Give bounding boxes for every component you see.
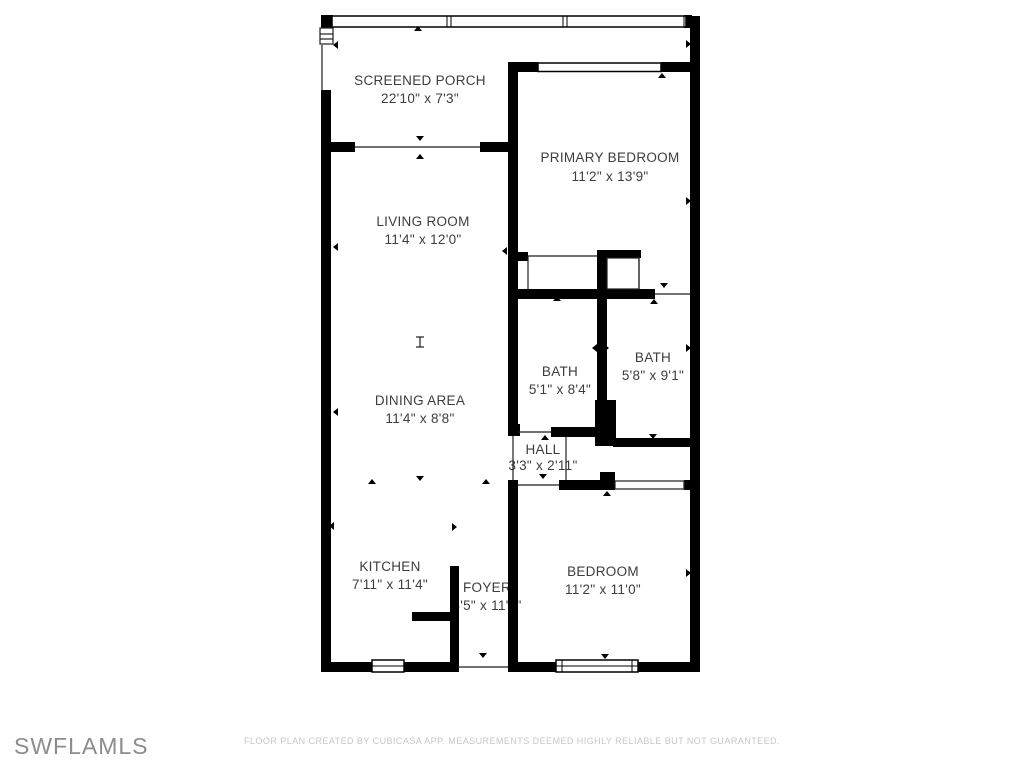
tick-arrow bbox=[416, 476, 424, 481]
room-label-bath-2: BATH bbox=[635, 350, 671, 365]
room-label-hall: HALL bbox=[526, 442, 561, 457]
floor-plan: SCREENED PORCH 22'10" x 7'3" PRIMARY BED… bbox=[0, 0, 1024, 768]
room-dims-dining-area: 11'4" x 8'8" bbox=[385, 411, 454, 426]
floor-plan-page: SCREENED PORCH 22'10" x 7'3" PRIMARY BED… bbox=[0, 0, 1024, 768]
disclaimer-text: FLOOR PLAN CREATED BY CUBICASA APP. MEAS… bbox=[0, 736, 1024, 746]
tick-arrow bbox=[539, 474, 547, 479]
room-label-living-room: LIVING ROOM bbox=[376, 214, 469, 229]
room-label-foyer: FOYER bbox=[463, 580, 511, 595]
room-dims-bath-2: 5'8" x 9'1" bbox=[622, 368, 684, 383]
wall bbox=[508, 62, 538, 72]
wall bbox=[518, 252, 528, 261]
room-dims-living-room: 11'4" x 12'0" bbox=[385, 232, 462, 247]
screen-door-symbol bbox=[320, 28, 333, 44]
tick-arrow bbox=[333, 408, 338, 416]
tick-arrow bbox=[541, 435, 549, 440]
room-dims-bath-1: 5'1" x 8'4" bbox=[529, 382, 591, 397]
room-label-bedroom: BEDROOM bbox=[567, 564, 639, 579]
wall bbox=[600, 472, 615, 482]
wall bbox=[508, 424, 520, 436]
wall bbox=[613, 438, 692, 447]
tick-arrow bbox=[479, 653, 487, 658]
room-dims-kitchen: 7'11" x 11'4" bbox=[352, 577, 428, 592]
wall bbox=[412, 612, 456, 621]
tick-arrow bbox=[416, 154, 424, 159]
tick-arrow bbox=[601, 654, 609, 659]
wall bbox=[321, 15, 333, 28]
wall bbox=[321, 142, 355, 152]
wall bbox=[321, 662, 373, 672]
wall bbox=[690, 16, 700, 672]
room-label-screened-porch: SCREENED PORCH bbox=[354, 73, 486, 88]
wall bbox=[321, 90, 331, 672]
room-dims-bedroom: 11'2" x 11'0" bbox=[565, 582, 641, 597]
porch-window-band bbox=[332, 16, 686, 27]
wall bbox=[661, 62, 692, 72]
closet-front bbox=[615, 481, 684, 489]
wall bbox=[597, 250, 641, 258]
room-dims-hall: 3'3" x 2'11" bbox=[508, 458, 577, 473]
primary-bedroom-window bbox=[538, 63, 661, 72]
wall bbox=[508, 289, 655, 299]
room-dims-primary-bedroom: 11'2" x 13'9" bbox=[572, 169, 649, 184]
room-label-primary-bedroom: PRIMARY BEDROOM bbox=[540, 150, 679, 165]
wall bbox=[404, 662, 458, 672]
wall bbox=[684, 480, 700, 490]
tick-arrow bbox=[658, 73, 666, 78]
tick-arrow bbox=[650, 299, 658, 304]
tick-arrow bbox=[333, 243, 338, 251]
wall bbox=[508, 62, 518, 299]
room-labels: SCREENED PORCH 22'10" x 7'3" PRIMARY BED… bbox=[352, 73, 684, 613]
closet-outline bbox=[607, 258, 639, 289]
tick-arrow bbox=[368, 479, 376, 484]
wall bbox=[551, 427, 599, 437]
tick-arrow bbox=[603, 491, 611, 496]
wall bbox=[508, 480, 518, 672]
room-label-kitchen: KITCHEN bbox=[359, 559, 420, 574]
room-label-dining-area: DINING AREA bbox=[375, 393, 465, 408]
wall bbox=[637, 662, 700, 672]
room-dims-screened-porch: 22'10" x 7'3" bbox=[381, 91, 459, 106]
tick-arrow bbox=[416, 136, 424, 141]
wall bbox=[508, 299, 518, 426]
tick-arrow bbox=[502, 247, 507, 255]
tick-arrow bbox=[452, 523, 457, 531]
tick-arrow bbox=[482, 479, 490, 484]
tick-arrow bbox=[333, 41, 338, 49]
wall bbox=[595, 400, 616, 446]
tick-arrow bbox=[592, 344, 597, 352]
room-label-bath-1: BATH bbox=[542, 364, 578, 379]
tick-arrow bbox=[660, 283, 668, 288]
